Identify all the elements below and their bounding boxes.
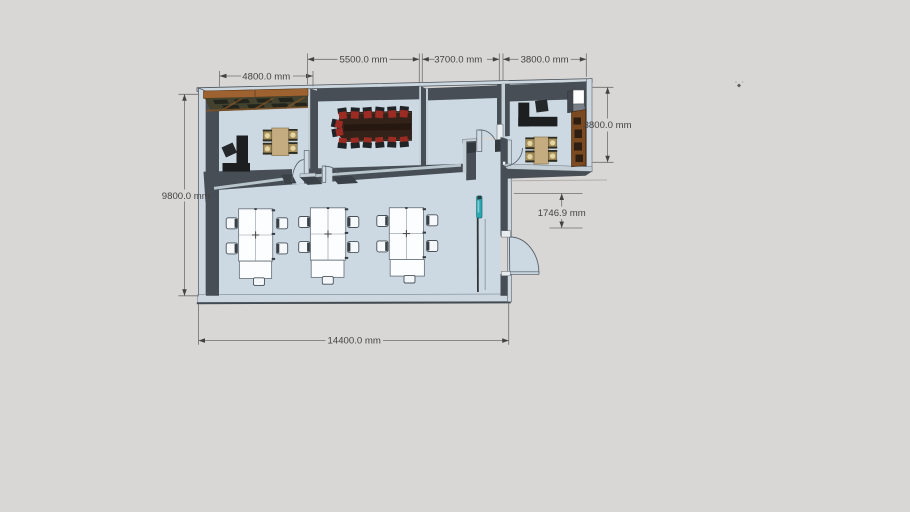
svg-text:4800.0 mm: 4800.0 mm [242,71,290,82]
svg-text:3800.0 mm: 3800.0 mm [521,54,569,65]
svg-text:1746.9 mm: 1746.9 mm [538,208,586,219]
svg-text:3700.0 mm: 3700.0 mm [434,54,482,65]
svg-text:5500.0 mm: 5500.0 mm [340,54,388,65]
svg-text:3800.0 mm: 3800.0 mm [584,120,632,131]
svg-text:14400.0 mm: 14400.0 mm [328,336,381,347]
svg-text:9800.0 mm: 9800.0 mm [162,191,210,202]
